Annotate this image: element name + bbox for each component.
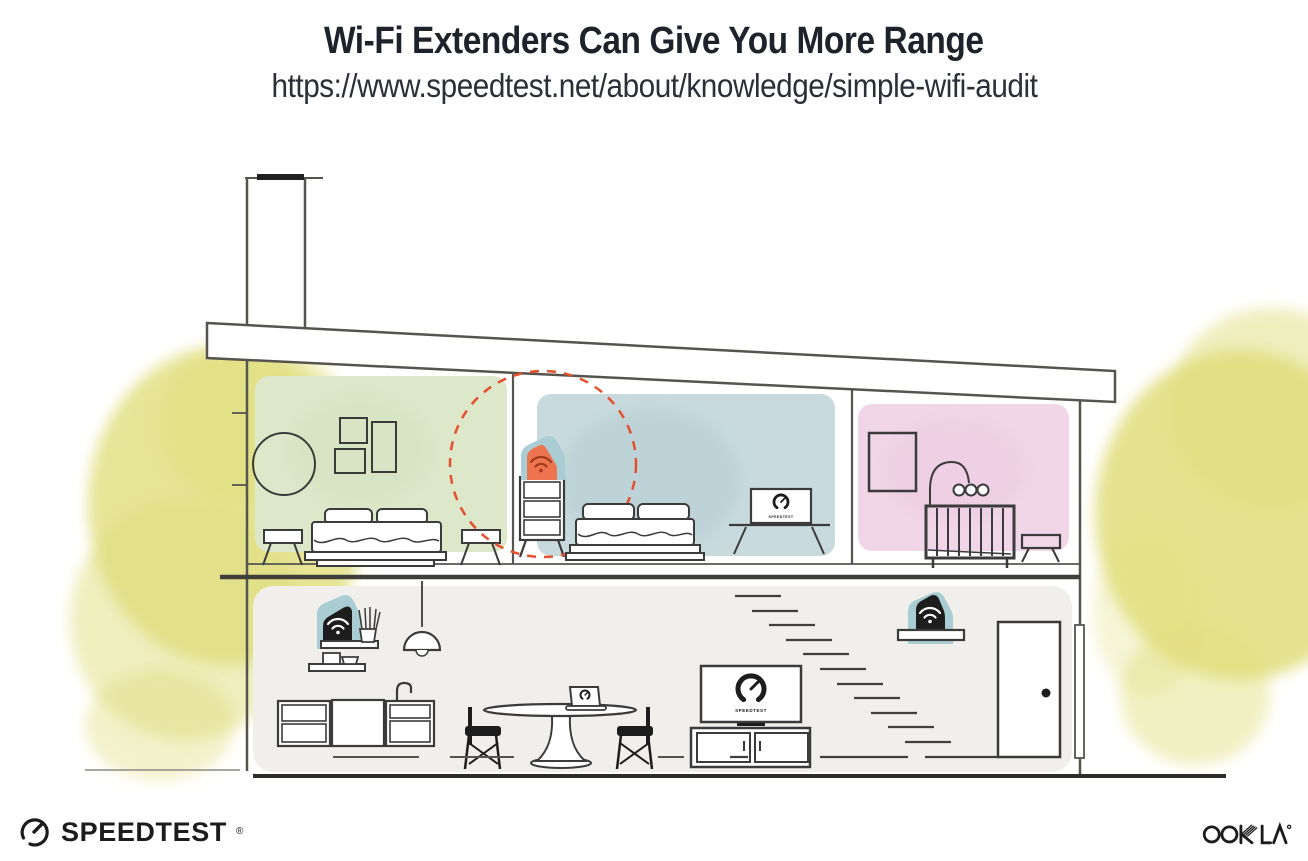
ookla-logo: OOKLA bbox=[1202, 820, 1294, 852]
bowl bbox=[342, 657, 358, 664]
living-room-tv: SPEEDTEST bbox=[691, 666, 810, 767]
registered-mark: ® bbox=[236, 817, 243, 847]
cup bbox=[323, 653, 340, 664]
door-jamb bbox=[1075, 625, 1084, 758]
bed bbox=[566, 504, 704, 560]
chimney bbox=[245, 174, 323, 329]
infographic-page: Wi-Fi Extenders Can Give You More Range … bbox=[0, 0, 1308, 861]
tv-screen-label: SPEEDTEST bbox=[769, 515, 794, 519]
tv-screen-label: SPEEDTEST bbox=[735, 708, 767, 713]
stool bbox=[1022, 535, 1060, 562]
media-console bbox=[691, 728, 810, 767]
ookla-wordmark bbox=[1202, 820, 1294, 847]
speedtest-wordmark: SPEEDTEST bbox=[61, 814, 227, 850]
speedtest-gauge-icon bbox=[16, 814, 52, 850]
tree-right bbox=[1093, 308, 1308, 765]
door-knob bbox=[1042, 689, 1051, 698]
speedtest-logo: SPEEDTEST ® bbox=[16, 814, 243, 850]
entry-shelf bbox=[898, 630, 964, 640]
house-cross-section-illustration: SPEEDTEST bbox=[0, 0, 1308, 861]
front-door bbox=[998, 622, 1060, 757]
bedroom-tv: SPEEDTEST bbox=[751, 489, 811, 525]
